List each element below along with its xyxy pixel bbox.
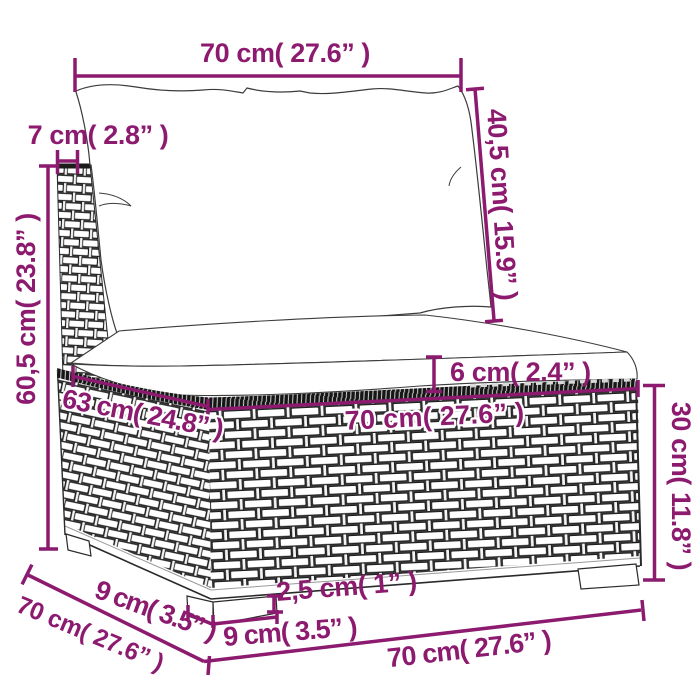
svg-text:70 cm( 27.6” ): 70 cm( 27.6” ): [200, 38, 370, 68]
svg-text:70 cm( 27.6” ): 70 cm( 27.6” ): [386, 625, 553, 673]
svg-text:7 cm( 2.8” ): 7 cm( 2.8” ): [28, 120, 169, 150]
svg-text:6 cm( 2.4” ): 6 cm( 2.4” ): [450, 357, 591, 387]
svg-text:30 cm( 11.8” ): 30 cm( 11.8” ): [666, 402, 696, 571]
svg-text:60,5 cm( 23.8” ): 60,5 cm( 23.8” ): [11, 213, 41, 405]
